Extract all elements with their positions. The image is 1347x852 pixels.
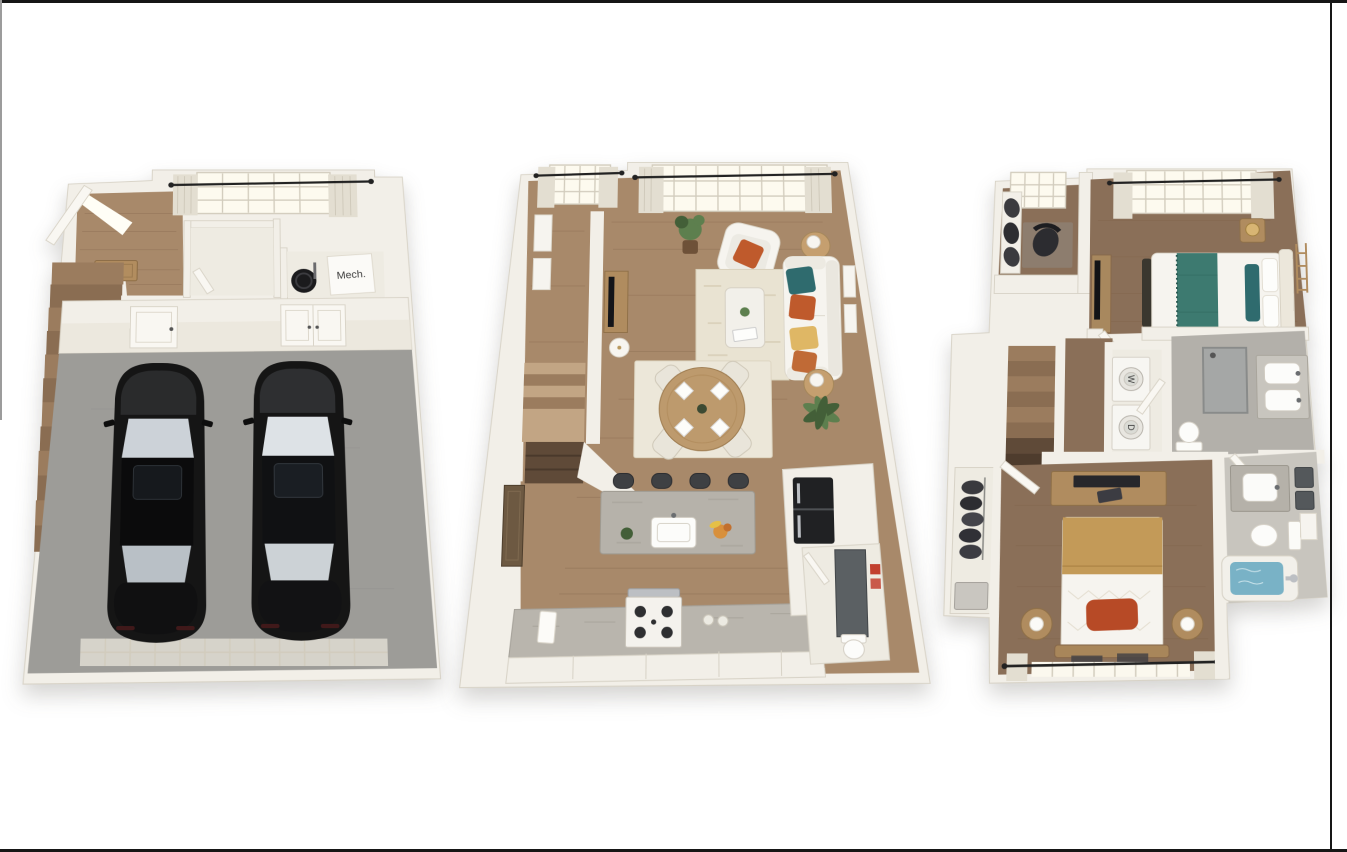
teal-accent-pillow — [1245, 264, 1261, 321]
mechanical-room: Mech. — [280, 248, 385, 299]
faucet — [671, 513, 676, 518]
mech-label: Mech. — [336, 268, 366, 281]
car-right — [243, 361, 358, 641]
floor-mat — [1117, 653, 1148, 661]
floorplan-garage-level: Mech. — [21, 169, 448, 690]
garage-entry-door — [130, 307, 178, 348]
table-lamp — [810, 373, 824, 386]
stair-landing — [522, 409, 585, 442]
garage-door-strip — [80, 639, 388, 666]
floorplan-bedroom-level: W D — [937, 167, 1347, 688]
mirror — [1295, 468, 1314, 488]
garage-back-wall — [59, 297, 412, 353]
garage-level-window — [168, 173, 375, 218]
bed-2 — [1055, 517, 1169, 657]
round-nightstand-left — [1021, 608, 1053, 639]
round-nightstand-right — [1172, 608, 1203, 639]
tv — [608, 277, 615, 327]
sink — [1243, 473, 1278, 501]
window-small — [532, 165, 624, 208]
shower — [1203, 348, 1248, 413]
washer-label: W — [1126, 375, 1136, 384]
toilet — [843, 640, 864, 659]
foot-bench — [1142, 259, 1152, 327]
red-towel — [870, 564, 881, 574]
tub-water — [1230, 562, 1284, 595]
gas-range — [625, 589, 681, 647]
powder-room — [802, 544, 890, 664]
lamp — [1181, 617, 1195, 631]
wall-art-frame — [844, 304, 857, 332]
side-table-bottom — [804, 369, 834, 398]
gold-lamp — [1246, 223, 1260, 236]
closet-with-clothes — [950, 462, 1003, 616]
curtain-left — [173, 174, 198, 215]
left-border-line — [0, 0, 2, 420]
wall-art-frame — [534, 215, 552, 251]
pillow — [1263, 295, 1279, 327]
nightstand-gold-lamp — [1240, 219, 1265, 242]
main-level-drawing — [457, 160, 933, 691]
floorplan-main-level — [457, 160, 933, 691]
window-large — [632, 165, 839, 213]
bathroom-2 — [1220, 452, 1327, 603]
island-sink — [651, 513, 696, 548]
bedroom-level-drawing: W D — [937, 167, 1347, 688]
laundry-closet: W D — [1104, 342, 1172, 462]
yellow-pillow — [789, 326, 819, 351]
teal-pillow — [785, 266, 816, 295]
bed-1 — [1142, 249, 1295, 336]
centerpiece — [697, 404, 707, 414]
den-nook — [994, 172, 1092, 293]
kitchen-island — [600, 491, 755, 554]
garage-double-door — [281, 305, 346, 346]
staircase — [521, 363, 586, 484]
washer: W — [1112, 357, 1150, 401]
sink — [1265, 390, 1301, 411]
bathtub — [1222, 556, 1299, 601]
headboard — [1279, 249, 1295, 336]
round-dining-table — [659, 368, 745, 451]
orange-pillow — [788, 294, 816, 321]
hand-towel — [537, 611, 556, 644]
refrigerator — [793, 477, 835, 543]
pillow — [1262, 259, 1278, 292]
double-vanity — [1256, 355, 1309, 418]
water-heater-pipe — [313, 262, 316, 279]
lamp — [1030, 617, 1044, 631]
tv — [1073, 475, 1140, 487]
sofa — [783, 257, 842, 380]
wall-art-frame — [843, 266, 856, 297]
rust-pillow — [1086, 598, 1138, 631]
jar — [703, 615, 713, 625]
sink — [1264, 363, 1300, 384]
coffee-table — [725, 288, 765, 348]
den-wall — [994, 275, 1084, 293]
jar — [718, 616, 728, 626]
red-towel — [870, 578, 881, 588]
teal-throw-blanket — [1177, 253, 1219, 333]
top-border-line — [0, 0, 1347, 3]
storage-box — [954, 583, 988, 610]
wall-art-frame — [533, 258, 551, 289]
wall-art-frame — [1300, 513, 1317, 539]
dresser-with-laptop — [1051, 471, 1166, 505]
table-plant — [740, 307, 750, 316]
side-table-top — [801, 232, 831, 259]
bedroom-2 — [994, 460, 1221, 681]
mirror — [1295, 491, 1314, 509]
tv — [1094, 260, 1100, 319]
floorplan-collage: Mech. — [0, 0, 1347, 852]
car-left — [98, 363, 214, 643]
dark-side-panel — [502, 485, 525, 566]
powder-mirror-panel — [835, 550, 868, 637]
garage-level-drawing: Mech. — [21, 169, 448, 690]
closet — [183, 219, 280, 297]
tv-console — [604, 271, 628, 332]
dryer-label: D — [1126, 424, 1136, 430]
bedroom1-window — [1107, 171, 1283, 219]
garage-floor — [28, 350, 438, 674]
vanity-2 — [1230, 466, 1289, 512]
table-lamp — [807, 236, 821, 249]
mech-label-box: Mech. — [327, 254, 375, 295]
